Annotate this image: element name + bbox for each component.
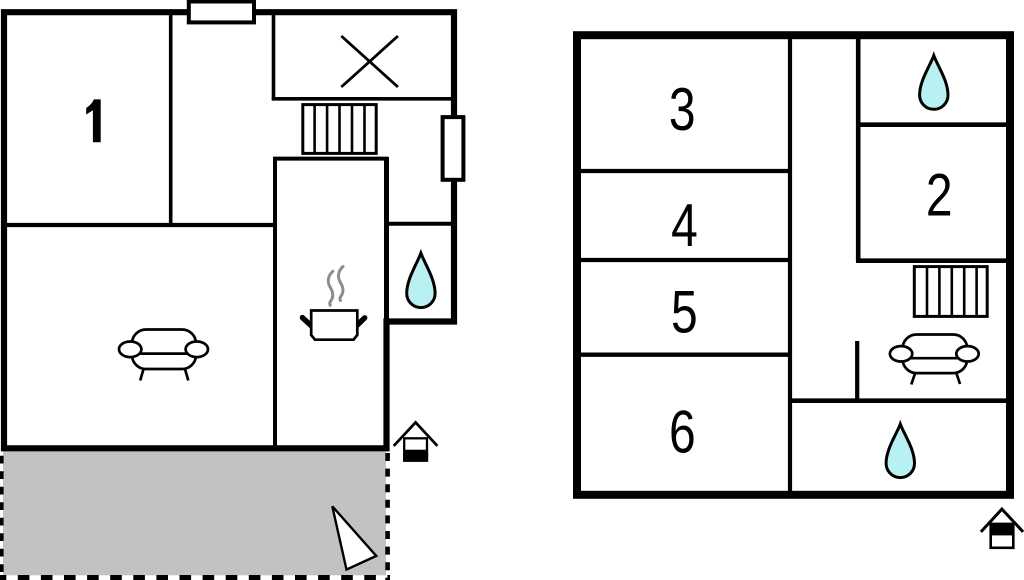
svg-text:5: 5: [671, 278, 698, 345]
svg-text:3: 3: [669, 76, 696, 143]
svg-text:4: 4: [671, 192, 698, 259]
svg-text:2: 2: [926, 161, 953, 228]
svg-text:6: 6: [669, 398, 696, 465]
